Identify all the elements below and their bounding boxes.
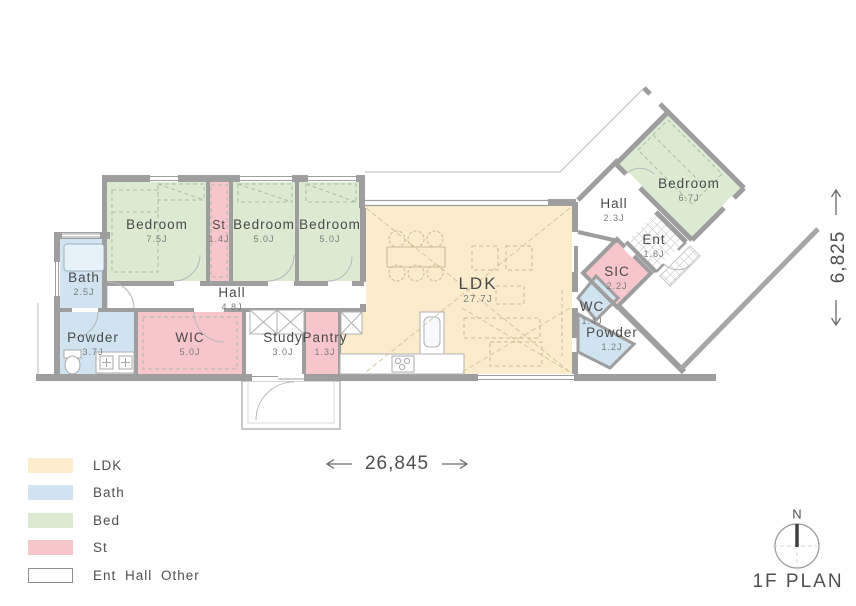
bathtub [64, 244, 104, 271]
floor-plan-page: Bedroom 7.5J St 1.4J Bedroom 5.0J Bedroo… [0, 0, 856, 606]
room-label-hall: Hall 4.8J [218, 285, 245, 313]
legend-item-st: St [28, 540, 200, 556]
room-label-hall2: Hall 2.3J [600, 196, 627, 224]
dimension-horizontal: 26,845 [365, 453, 429, 475]
plan-title: 1F PLAN [752, 571, 843, 593]
compass-north-label: N [792, 507, 801, 522]
legend-swatch-ldk [28, 458, 73, 473]
legend-swatch-bed [28, 513, 73, 528]
room-label-bedroom2: Bedroom 5.0J [233, 217, 295, 245]
room-label-study: Study 3.0J [263, 330, 303, 358]
legend: LDK Bath Bed St Ent Hall Other [28, 457, 200, 595]
room-label-powder: Powder 3.7J [67, 330, 119, 358]
room-label-bedroom1: Bedroom 7.5J [126, 217, 188, 245]
room-label-sic: SIC 2.2J [604, 264, 630, 292]
room-label-ent: Ent 1.6J [642, 232, 665, 260]
dimension-vertical: 6,825 [828, 231, 850, 284]
garden-wall [681, 229, 818, 369]
legend-item-bath: Bath [28, 485, 200, 501]
right-arrow-icon [442, 460, 467, 469]
legend-item-bed: Bed [28, 512, 200, 528]
up-arrow-icon [832, 190, 841, 215]
legend-item-other: Ent Hall Other [28, 567, 200, 583]
room-label-bath: Bath 2.5J [68, 270, 100, 298]
room-label-bedroom4: Bedroom 6.7J [658, 176, 720, 204]
terrace [242, 381, 340, 429]
room-label-st: St 1.4J [208, 217, 229, 245]
room-label-wic: WIC 5.0J [175, 330, 204, 358]
left-arrow-icon [327, 460, 352, 469]
room-label-ldk: LDK 27.7J [458, 274, 497, 306]
kitchen-sink [424, 317, 440, 347]
room-label-powder2: Powder 1.2J [586, 325, 638, 353]
room-ldk-floor [340, 206, 572, 374]
room-label-bedroom3: Bedroom 5.0J [299, 217, 361, 245]
legend-swatch-st [28, 540, 73, 555]
legend-swatch-bath [28, 485, 73, 500]
legend-swatch-other [28, 568, 73, 583]
compass-icon [773, 524, 821, 570]
room-label-pantry: Pantry 1.3J [302, 330, 347, 358]
down-arrow-icon [832, 300, 841, 325]
legend-item-ldk: LDK [28, 457, 200, 473]
room-label-wc: WC 1.4J [580, 299, 605, 327]
